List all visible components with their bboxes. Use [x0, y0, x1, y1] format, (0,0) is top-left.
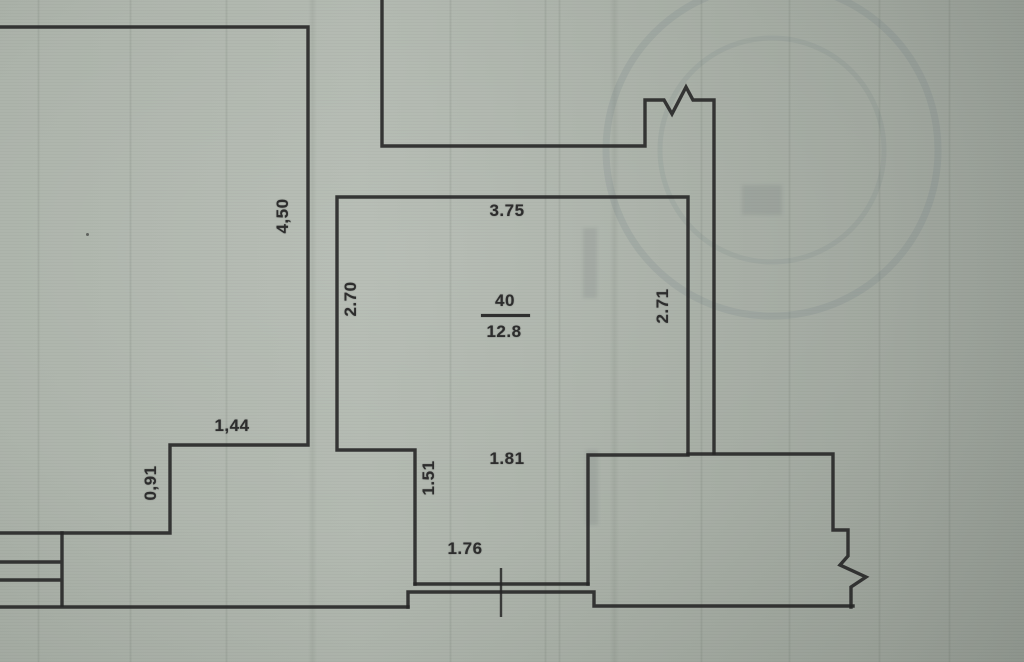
- floor-plan-scan: 4,50 3.75 2.70 2.71 1,44 0,91 1.51 1.81 …: [0, 0, 1024, 662]
- wall-room-40: [337, 197, 688, 584]
- dim-4-50: 4,50: [273, 198, 293, 233]
- window-sill-line: [408, 592, 853, 607]
- wall-upper-corridor: [382, 0, 714, 453]
- dim-1-44: 1,44: [214, 416, 249, 436]
- dim-2-71: 2.71: [653, 288, 673, 323]
- dim-1-51: 1.51: [419, 460, 439, 495]
- dim-3-75: 3.75: [489, 201, 524, 221]
- room-area: 12.8: [486, 322, 521, 342]
- wall-left-room: [0, 27, 308, 533]
- dim-1-81: 1.81: [489, 449, 524, 469]
- dim-1-76: 1.76: [447, 539, 482, 559]
- stamp-watermark: [606, 0, 938, 316]
- dim-2-70: 2.70: [341, 281, 361, 316]
- dim-0-91: 0,91: [141, 465, 161, 500]
- room-number: 40: [495, 291, 515, 311]
- room-fraction-line: [481, 314, 530, 317]
- wall-stair-block: [0, 533, 62, 605]
- wall-right-side: [688, 454, 866, 607]
